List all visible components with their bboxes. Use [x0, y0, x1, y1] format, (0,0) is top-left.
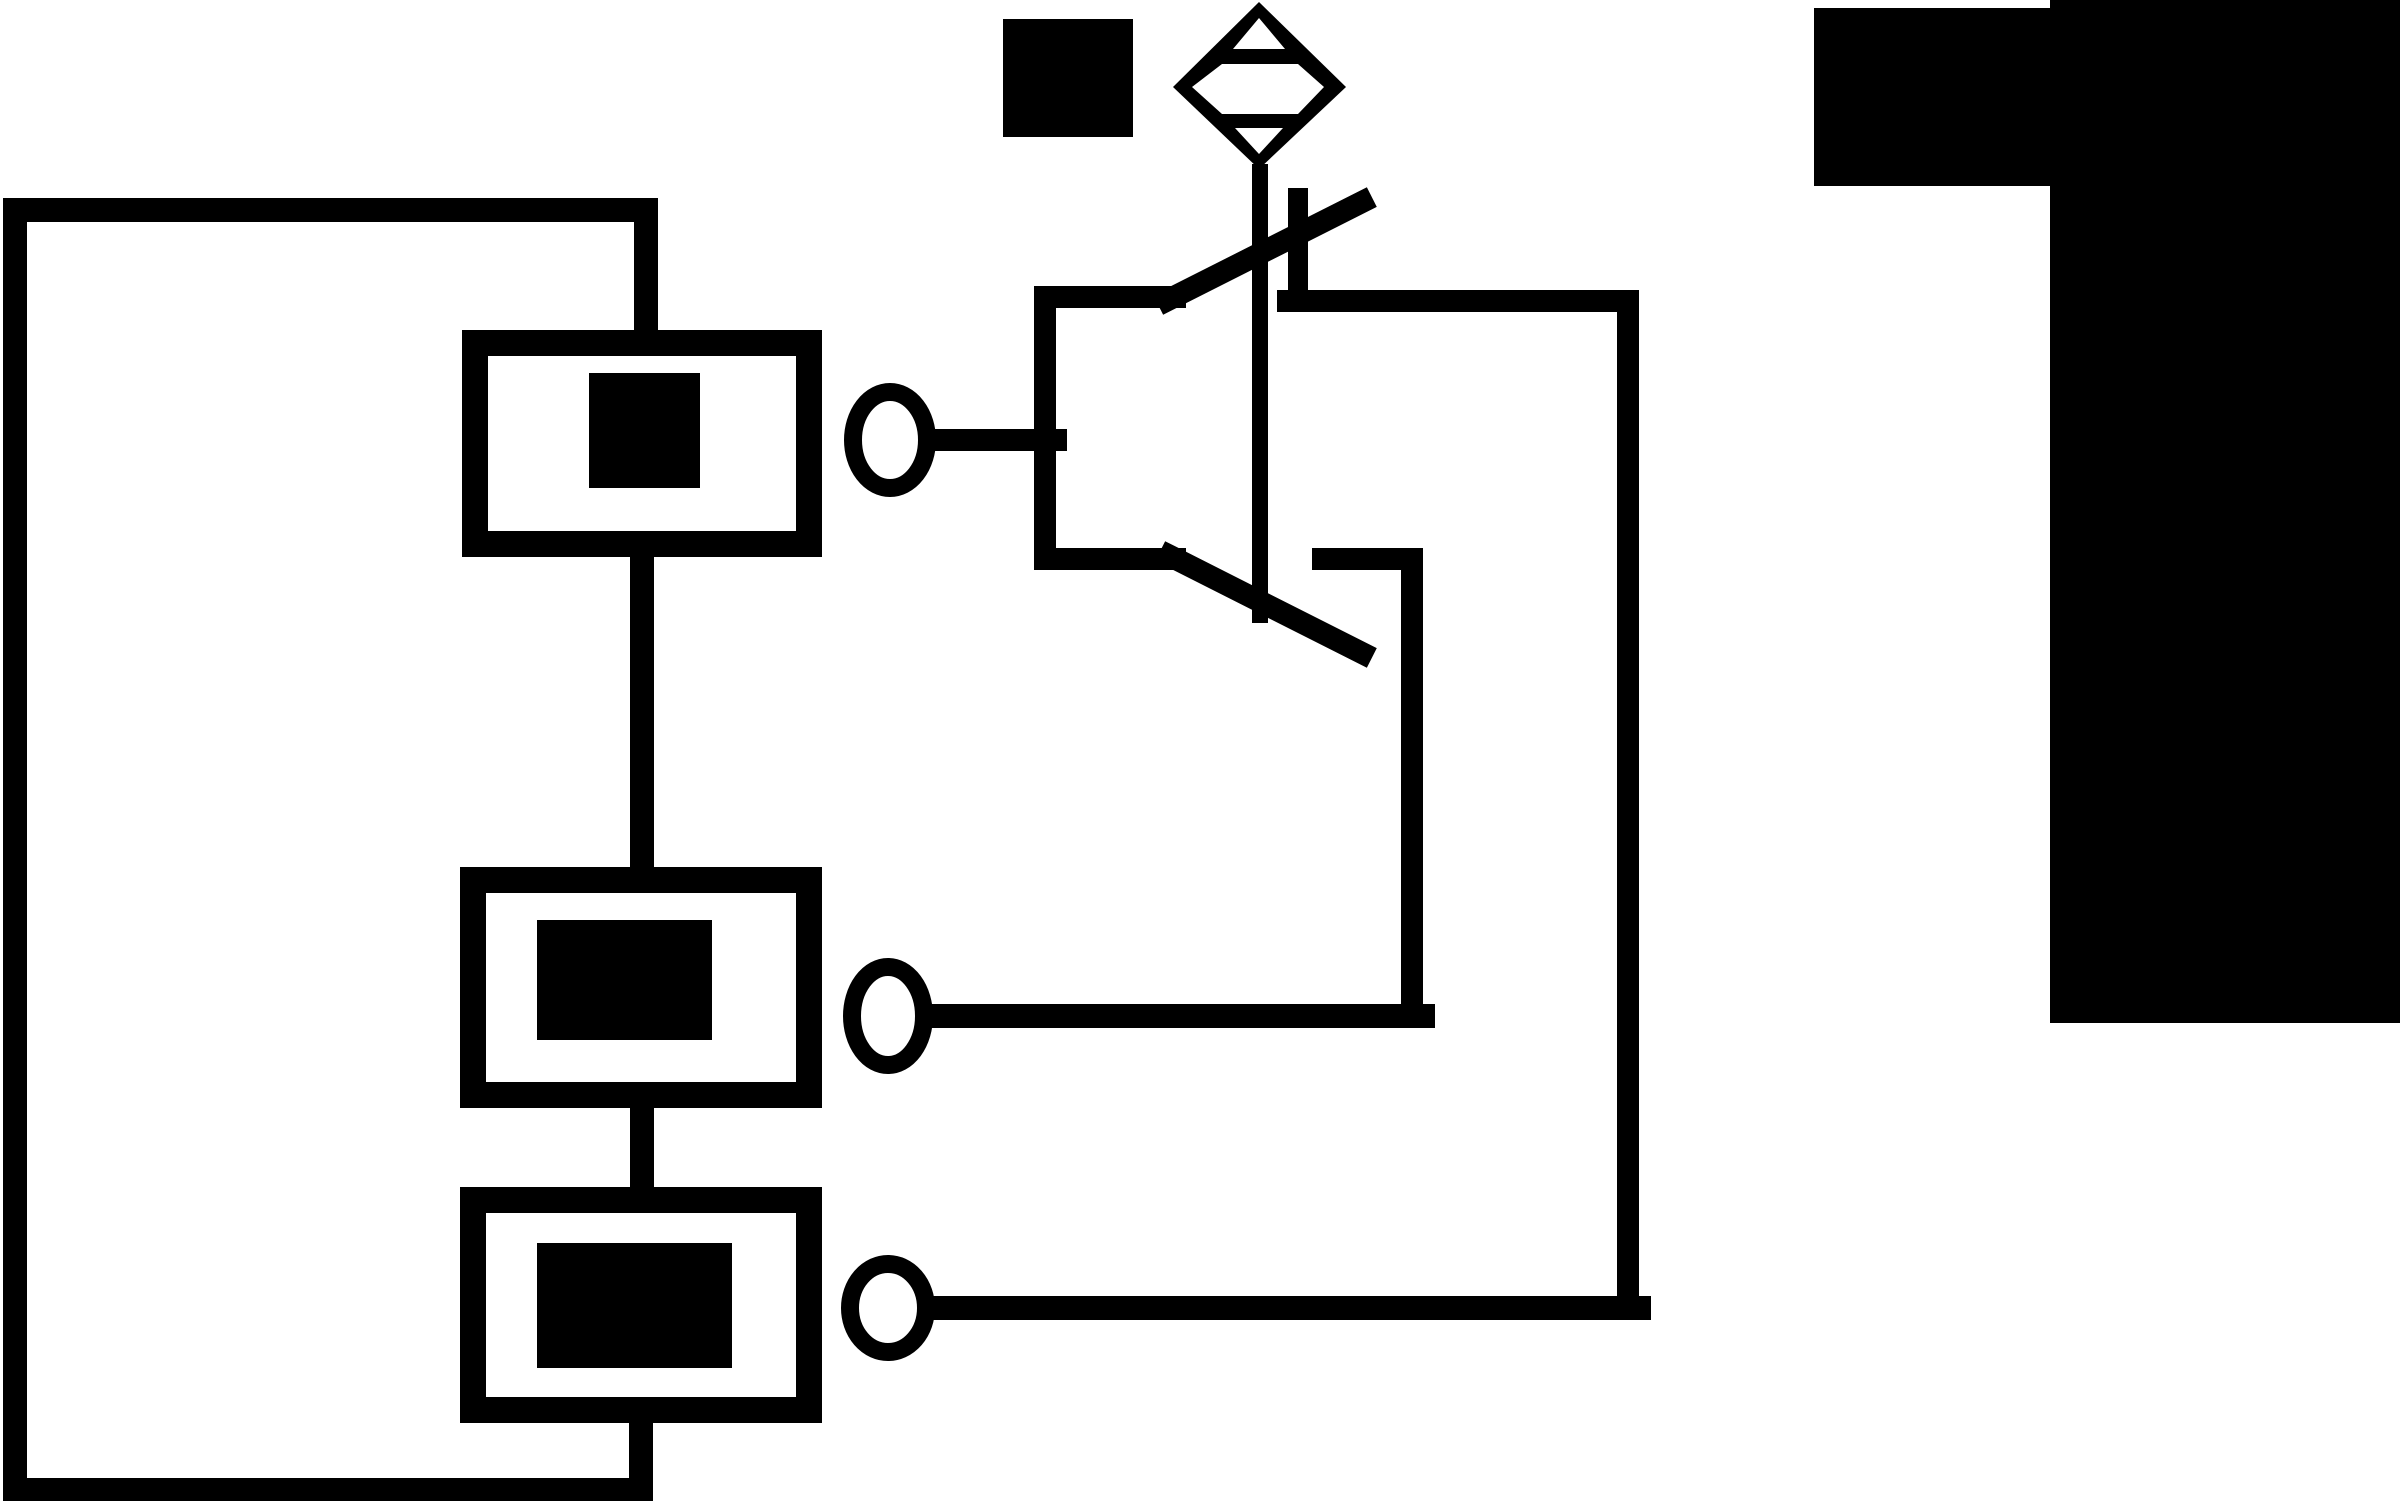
schematic-figure: [0, 0, 2400, 1501]
terminal-circle-2: [852, 967, 924, 1065]
legend-black-square: [1003, 19, 1133, 137]
component-box-2-fill-mark: [537, 920, 712, 1040]
component-box-3-fill-mark: [537, 1243, 732, 1368]
schematic-figure-canvas: [0, 0, 2400, 1501]
switch-frame: [1045, 297, 1175, 559]
terminal-circle-3: [850, 1264, 926, 1352]
redacted-label-small: [1814, 8, 2052, 186]
component-box-1-fill-mark: [589, 373, 700, 488]
redacted-label-large: [2050, 0, 2400, 1023]
terminal-circle-1: [853, 392, 927, 488]
